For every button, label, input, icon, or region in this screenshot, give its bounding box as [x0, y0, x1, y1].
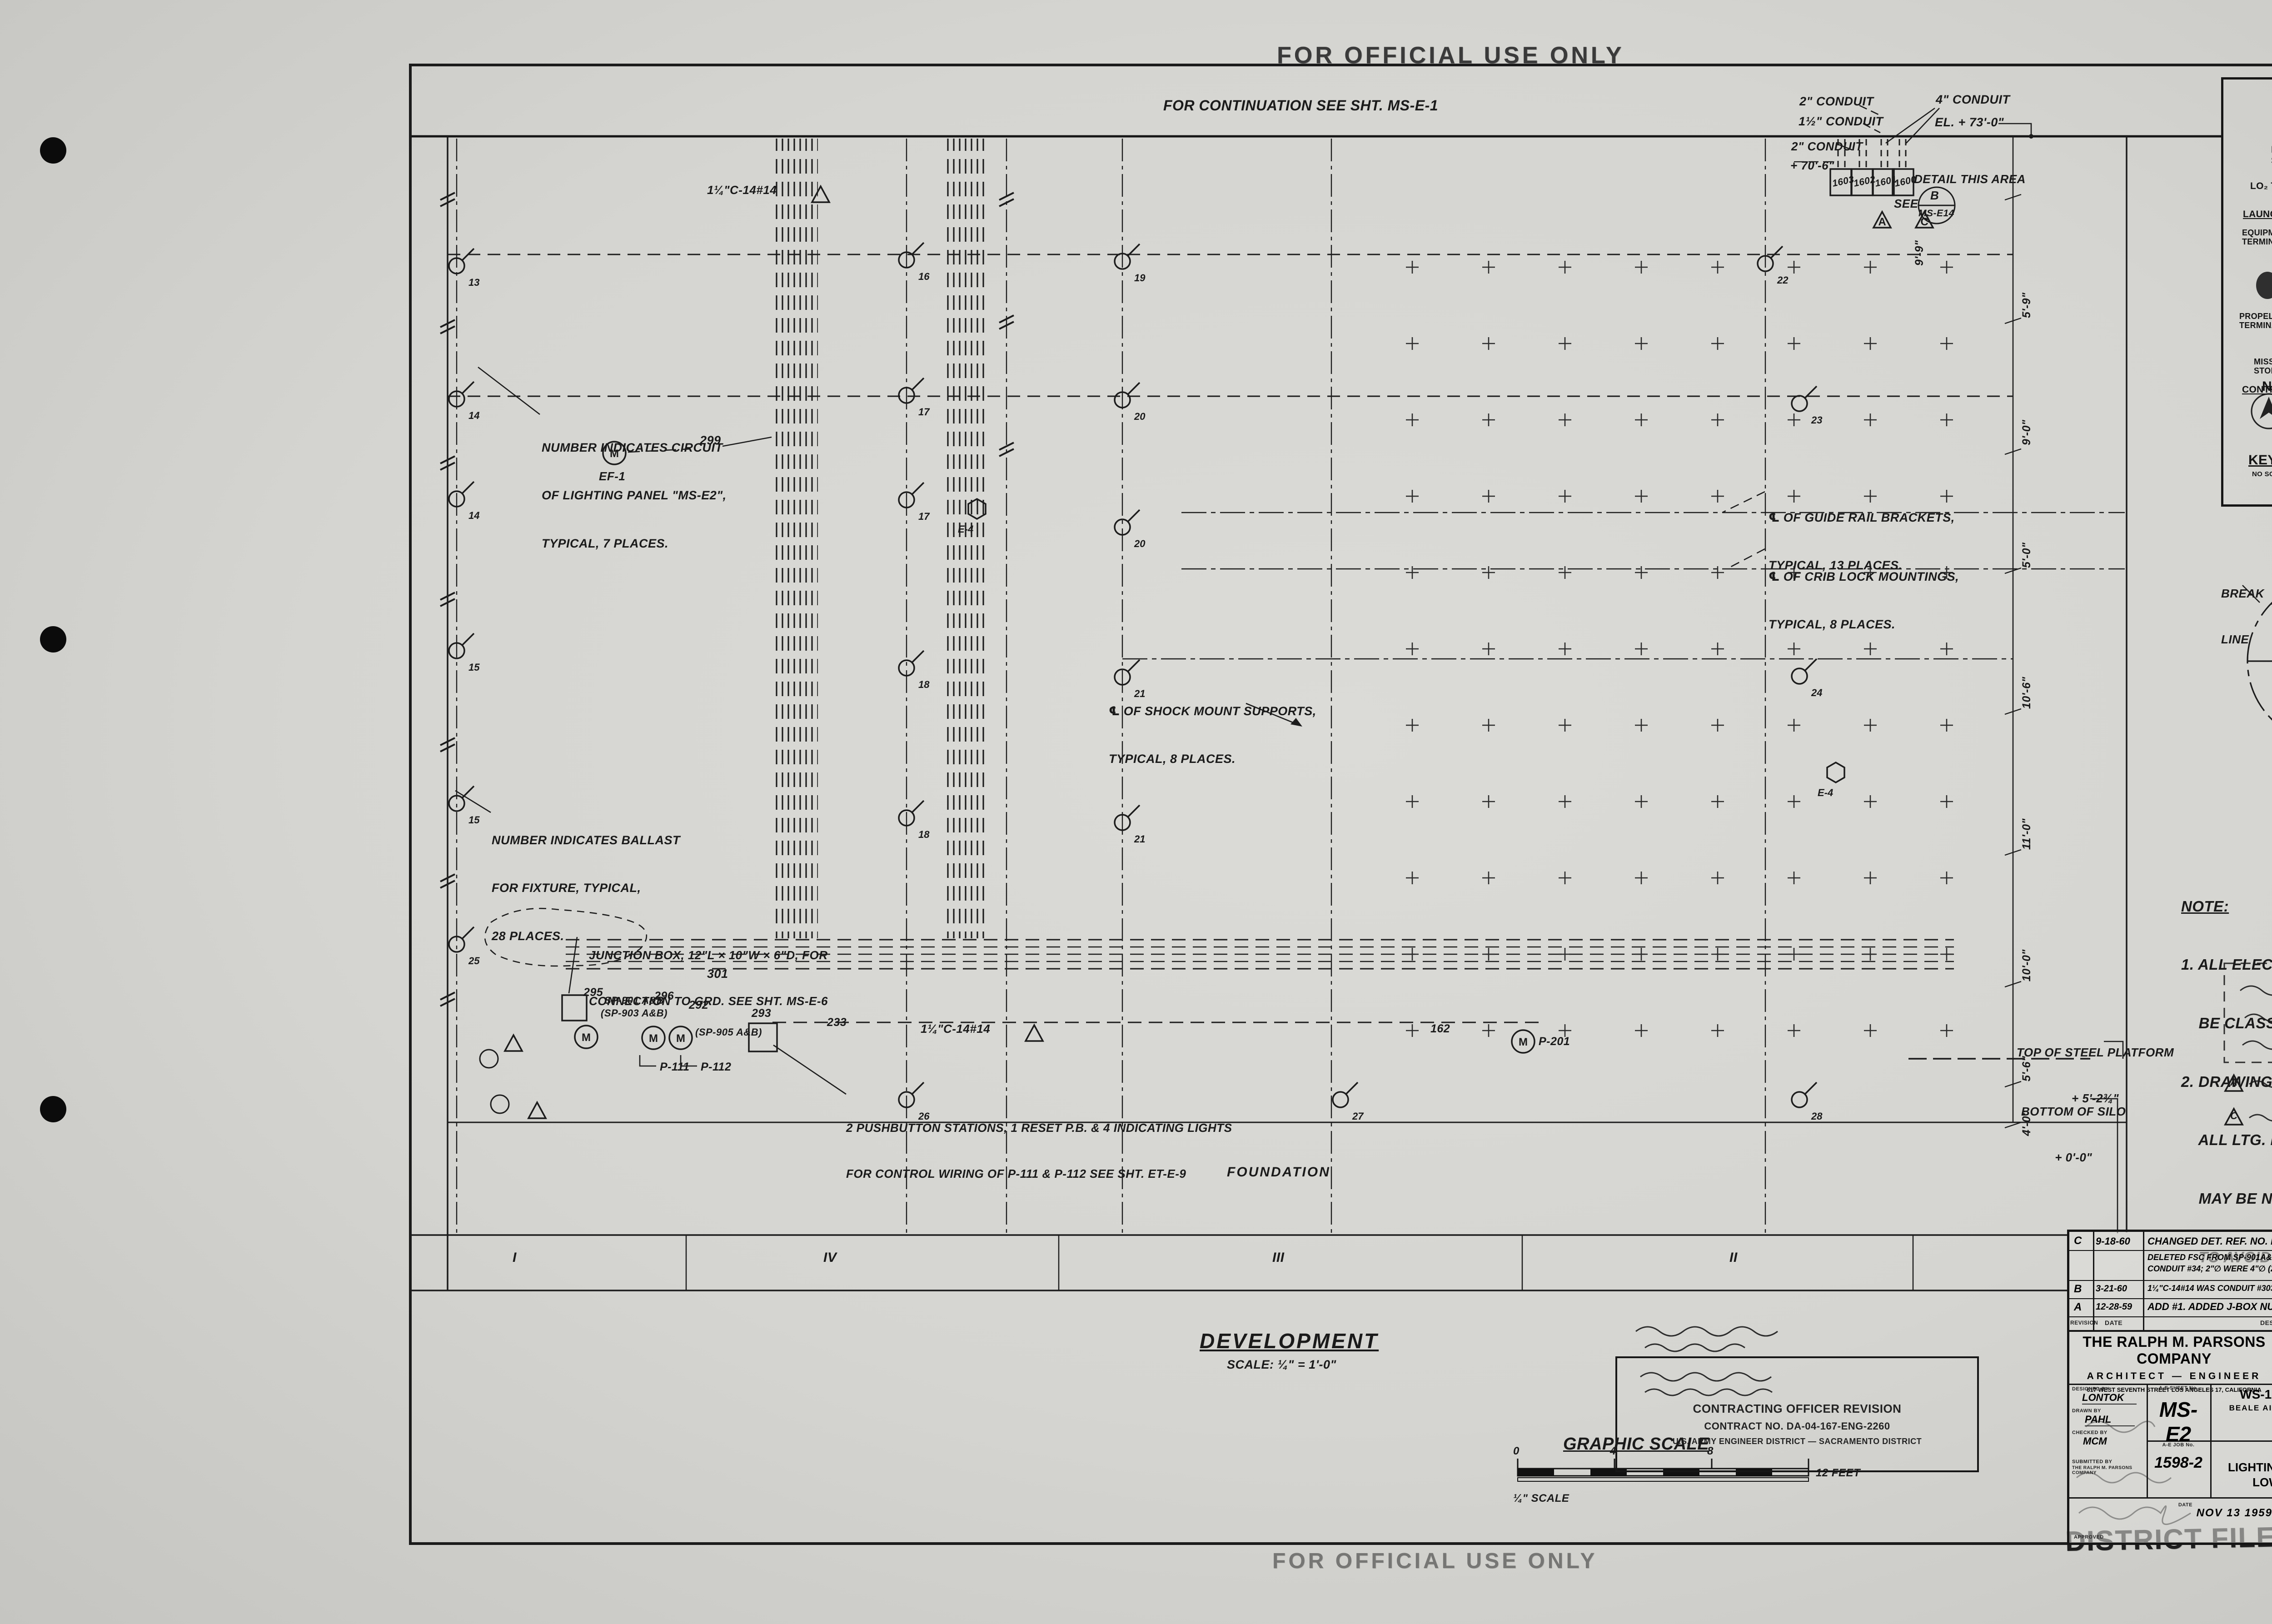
stamp-line: CONTRACTING OFFICER REVISION [1617, 1402, 1977, 1416]
wire-tag-299: 299 [700, 433, 721, 448]
p111-label: P-111 [660, 1060, 690, 1075]
svg-text:14: 14 [468, 410, 479, 421]
note-line: 2 PUSHBUTTON STATIONS, 1 RESET P.B. & 4 … [846, 1121, 1232, 1136]
firm-role: ARCHITECT — ENGINEER [2069, 1371, 2272, 1382]
svg-text:24: 24 [1811, 687, 1822, 698]
svg-text:28: 28 [1811, 1111, 1823, 1122]
detail-flag-top: B [1930, 188, 1939, 204]
submitted-label: SUBMITTED BY [2072, 1459, 2147, 1465]
note-line: OF LIGHTING PANEL "MS-E2", [542, 488, 727, 503]
project-cell: WS-107 A-2 TECHNICAL FACILITIES BEALE AI… [2210, 1384, 2272, 1442]
revision-row: C 9-18-60 CHANGED DET. REF. NO. FOR PULL… [2069, 1232, 2272, 1251]
dim-right: 11'-0" [2019, 818, 2034, 850]
continuation-note: FOR CONTINUATION SEE SHT. MS-E-1 [1163, 96, 1438, 115]
svg-text:20: 20 [1134, 538, 1146, 549]
sheet-title-cell: MISSILE SILO LIGHTING, POWER, LAUNCHER C… [2210, 1440, 2272, 1497]
checked-value: MCM [2083, 1435, 2147, 1447]
drawn-label: DRAWN BY [2072, 1408, 2147, 1414]
note-line: FOR CONTROL WIRING OF P-111 & P-112 SEE … [846, 1166, 1232, 1182]
ae-sheet-label: A-E SHEET No. [2147, 1385, 2210, 1391]
detail-see-label: SEE [1894, 196, 1918, 212]
conduit-4in-label: 4" CONDUIT [1936, 92, 2010, 108]
svg-text:20: 20 [1134, 411, 1146, 422]
firm-name: THE RALPH M. PARSONS COMPANY [2069, 1334, 2272, 1367]
scanned-engineering-drawing: { "stamps": { "top": "FOR OFFICIAL USE O… [0, 0, 2272, 1624]
note-line: FOR FIXTURE, TYPICAL, [492, 880, 680, 896]
stamp-line: CONTRACT NO. DA-04-167-ENG-2260 [1617, 1420, 1977, 1432]
svg-text:14: 14 [468, 510, 479, 521]
section-numeral: I [513, 1249, 517, 1266]
ae-sheet-number: MS-E2 [2147, 1397, 2210, 1446]
rev-symbol: B [2074, 1283, 2082, 1295]
note-line: 1. ALL ELECTRICAL INSTALLATION SHALL [2181, 955, 2272, 975]
conduit-size-note: 1¼"C-14#14 [707, 183, 777, 198]
note-line: ALL LTG. FIXTURES. SLIGHT DEVIATIONS [2181, 1131, 2272, 1150]
el-73-label: EL. + 73'-0" [1935, 115, 2004, 130]
revision-table: C 9-18-60 CHANGED DET. REF. NO. FOR PULL… [2069, 1232, 2272, 1330]
rev-desc: CHANGED DET. REF. NO. FOR PULL BOXES. [2147, 1235, 2272, 1247]
checked-label: CHECKED BY [2072, 1430, 2147, 1435]
revision-row: A 12-28-59 ADD #1. ADDED J-BOX NUMBER & … [2069, 1298, 2272, 1317]
notes-heading: NOTE: [2181, 897, 2272, 917]
svg-text:13: 13 [468, 277, 479, 288]
official-use-stamp-top: FOR OFFICIAL USE ONLY [1277, 42, 1624, 69]
title-block: C 9-18-60 CHANGED DET. REF. NO. FOR PULL… [2067, 1230, 2272, 1545]
svg-text:E-4: E-4 [958, 523, 973, 535]
designed-label: DESIGNED BY [2072, 1386, 2147, 1392]
dim-right: 9'-0" [2019, 420, 2034, 445]
wire-tag-295: 295 [583, 985, 603, 1000]
section-numeral: IV [823, 1249, 837, 1266]
rev-header: REVISION [2070, 1320, 2098, 1326]
note-line: LINE [2221, 632, 2264, 648]
conduit-bundle [772, 139, 818, 938]
dim-right: 10'-6" [2019, 677, 2034, 709]
rev-symbol: C [2074, 1235, 2082, 1247]
crib-lock-note: ℄ OF CRIB LOCK MOUNTINGS, TYPICAL, 8 PLA… [1769, 537, 1959, 649]
project-line: COMPLEX 1A, 1B & 1C [2210, 1415, 2272, 1426]
wire-tag-292: 292 [689, 998, 708, 1013]
svg-text:23: 23 [1811, 414, 1822, 426]
svg-text:16: 16 [918, 271, 930, 282]
pushbutton-note: 2 PUSHBUTTON STATIONS, 1 RESET P.B. & 4 … [846, 1090, 1232, 1197]
shock-mount-note: ℄ OF SHOCK MOUNT SUPPORTS, TYPICAL, 8 PL… [1109, 672, 1316, 783]
rev-header: DATE [2105, 1319, 2123, 1326]
title-line: MISSILE SILO [2210, 1443, 2272, 1459]
note-line: BOTTOM OF SILO [2021, 1104, 2126, 1120]
rev-desc: ADD #1. ADDED J-BOX NUMBER & REV F.S. [2147, 1301, 2272, 1313]
ef1-label: EF-1 [599, 469, 625, 484]
title-line: LIGHTING, POWER, LAUNCHER CONTROL [2210, 1460, 2272, 1475]
dim-right: 5'-9" [2019, 293, 2034, 318]
svg-text:M: M [582, 1031, 591, 1044]
ae-job-cell: A-E JOB No. 1598-2 [2147, 1440, 2212, 1497]
kp-equipment-terminal: EQUIPMENT TERMINAL [2242, 228, 2272, 246]
date-stamp: NOV 13 1959 [2197, 1507, 2272, 1519]
svg-text:15: 15 [468, 662, 480, 673]
svg-text:18: 18 [918, 829, 930, 840]
el-70-label: + 70'-6" [1790, 158, 1834, 174]
development-scale: SCALE: ¼" = 1'-0" [1227, 1357, 1336, 1373]
note-line: BREAK [2221, 586, 2264, 602]
sp903-label: (SP-903 A&B) [601, 1007, 668, 1020]
signature-cell: DATE NOV 13 1959 APPROVED [2069, 1497, 2272, 1543]
detail-flag-bottom: MS-E14 [1918, 207, 1954, 219]
note-line: TYPICAL, 8 PLACES. [1109, 751, 1316, 767]
rev-desc: DELETED FSC FROM SP-901A&B, -903A&B, -90… [2147, 1252, 2272, 1275]
note-line: TYPICAL, 7 PLACES. [542, 536, 727, 552]
svg-text:18: 18 [918, 679, 930, 690]
wire-tag-233: 233 [827, 1015, 847, 1030]
kp-launcher1: LAUNCHER No. 1 [2243, 209, 2272, 220]
graphic-scale-0: 0 [1513, 1444, 1520, 1458]
rev-date: 9-18-60 [2096, 1235, 2130, 1247]
svg-text:M: M [649, 1032, 658, 1045]
kp-no-scale: NO SCALE [2252, 471, 2272, 478]
submitted-value: THE RALPH M. PARSONS COMPANY [2072, 1465, 2147, 1475]
break-line-label: BREAK LINE [2221, 555, 2264, 663]
svg-text:E-4: E-4 [1818, 787, 1833, 798]
approved-label: APPROVED [2074, 1534, 2104, 1540]
circuit-note: NUMBER INDICATES CIRCUIT OF LIGHTING PAN… [542, 408, 727, 568]
conduit-size-note: 1¼"C-14#14 [921, 1021, 990, 1037]
note-line: 2. DRAWINGS SHOW APPROX. LOCATION OF [2181, 1072, 2272, 1092]
wire-tag-162: 162 [1430, 1021, 1450, 1036]
note-line: TYPICAL, 8 PLACES. [1769, 617, 1959, 633]
bottom-silo-label: BOTTOM OF SILO + 0'-0" [2021, 1073, 2126, 1181]
kp-propellant-terminal: PROPELLANT TERMINAL [2239, 312, 2272, 330]
firm-cell: THE RALPH M. PARSONS COMPANY ARCHITECT —… [2069, 1330, 2272, 1385]
rev-symbol: A [2074, 1301, 2082, 1314]
project-line: BEALE AIR FORCE BASE, MARYSVILLE, CALIFO… [2210, 1404, 2272, 1413]
revision-row: B 3-21-60 1¼"C-14#14 WAS CONDUIT #303. A… [2069, 1280, 2272, 1299]
section-numeral: II [1729, 1249, 1738, 1266]
dim-right: 5'-0" [2019, 543, 2034, 568]
note-line: ℄ OF GUIDE RAIL BRACKETS, [1769, 510, 1955, 526]
date-label: DATE [2178, 1502, 2192, 1508]
svg-text:M: M [1519, 1036, 1528, 1048]
kp-lo2-tank: LO₂ TANK [2250, 181, 2272, 192]
rev-desc: 1¼"C-14#14 WAS CONDUIT #303. ADDED NOTE:… [2147, 1284, 2272, 1293]
tri-a-mark: A [2230, 1076, 2237, 1089]
svg-text:A: A [1878, 216, 1886, 228]
svg-text:15: 15 [468, 814, 480, 826]
conduit-2in-low-label: 2" CONDUIT [1791, 139, 1863, 154]
title-line: LOWER SECTION DEVELOPMENT [2210, 1475, 2272, 1489]
dim-right: 10'-0" [2019, 949, 2034, 981]
wire-tag-301: 301 [707, 966, 728, 982]
graphic-scale-sub: ¼" SCALE [1513, 1491, 1569, 1505]
sp901-label: SP-901 A&B [604, 994, 664, 1007]
graphic-scale-8: 8 [1707, 1444, 1714, 1458]
bracket-marks [1345, 227, 1954, 1100]
tri-c-mark: C [2230, 1110, 2237, 1123]
svg-text:17: 17 [918, 406, 930, 418]
ae-job-number: 1598-2 [2147, 1454, 2210, 1472]
note-line: + 0'-0" [2021, 1150, 2126, 1166]
development-title: DEVELOPMENT [1200, 1328, 1379, 1355]
conduit-1-5in-label: 1½" CONDUIT [1799, 114, 1883, 130]
note-line: BE CLASS 1, DIVISION 2 PER N.E.C. [2181, 1014, 2272, 1033]
note-line: JUNCTION BOX, 12"L × 10"W × 6"D, FOR [589, 948, 828, 963]
kp-fuel-storage: MISSILE FUEL STORAGE [2254, 357, 2272, 375]
ae-sheet-cell: A-E SHEET No. MS-E2 [2147, 1384, 2212, 1442]
rev-header: DESCRIPTION [2260, 1319, 2272, 1326]
conduit-bundle [943, 139, 988, 938]
kp-title: KEY PLAN [2248, 453, 2272, 468]
rev-date: 12-28-59 [2096, 1302, 2132, 1312]
p201-label: P-201 [1539, 1034, 1570, 1049]
graphic-scale-end: 12 FEET [1816, 1466, 1860, 1480]
project-line: WS-107 A-2 TECHNICAL FACILITIES [2210, 1387, 2272, 1402]
note-line: ℄ OF SHOCK MOUNT SUPPORTS, [1109, 703, 1316, 719]
detail-area-label: DETAIL THIS AREA [1914, 172, 2026, 187]
sp905-label: (SP-905 A&B) [695, 1026, 762, 1039]
credits-cell: DESIGNED BY LONTOK DRAWN BY PAHL CHECKED… [2069, 1384, 2148, 1497]
svg-text:27: 27 [1352, 1111, 1364, 1122]
note-line: MAY BE NECESSARY DURING CONST. [2181, 1189, 2272, 1209]
ae-job-label: A-E JOB No. [2147, 1442, 2210, 1448]
note-line: NUMBER INDICATES CIRCUIT [542, 440, 727, 456]
foundation-label: FOUNDATION [1227, 1163, 1330, 1181]
conduit-2in-label: 2" CONDUIT [1799, 94, 1873, 110]
designed-value: LONTOK [2082, 1392, 2137, 1405]
graphic-scale-label: GRAPHIC SCALE [1563, 1433, 1709, 1455]
revision-header-row: REVISION DATE DESCRIPTION AGENCY INIT [2069, 1316, 2272, 1332]
key-plan-panel [2221, 77, 2272, 507]
svg-text:21: 21 [1134, 833, 1145, 845]
svg-text:25: 25 [468, 955, 480, 966]
section-numeral: III [1272, 1249, 1285, 1266]
drawn-value: PAHL [2085, 1414, 2135, 1426]
general-notes: NOTE: 1. ALL ELECTRICAL INSTALLATION SHA… [2181, 858, 2272, 1287]
p112-label: P-112 [701, 1060, 731, 1075]
dim-right: 4'-0" [2019, 1111, 2034, 1136]
dim-top-right: 9'-9" [1912, 240, 1927, 266]
svg-text:22: 22 [1777, 274, 1789, 286]
official-use-stamp-bottom: FOR OFFICIAL USE ONLY [1272, 1549, 1597, 1574]
rev-date: 3-21-60 [2096, 1284, 2127, 1294]
note-line: ℄ OF CRIB LOCK MOUNTINGS, [1769, 569, 1959, 585]
wire-tag-293: 293 [752, 1006, 771, 1021]
svg-text:17: 17 [918, 511, 930, 522]
note-line: NUMBER INDICATES BALLAST [492, 832, 680, 848]
graphic-scale-4: 4 [1610, 1444, 1616, 1458]
revision-row: DELETED FSC FROM SP-901A&B, -903A&B, -90… [2069, 1250, 2272, 1281]
kp-north-label: N [2262, 379, 2272, 394]
dim-right: 5'-6" [2019, 1056, 2034, 1081]
svg-text:M: M [676, 1032, 685, 1045]
note-line: TOP OF STEEL PLATFORM [2017, 1045, 2174, 1061]
svg-text:19: 19 [1134, 272, 1146, 284]
